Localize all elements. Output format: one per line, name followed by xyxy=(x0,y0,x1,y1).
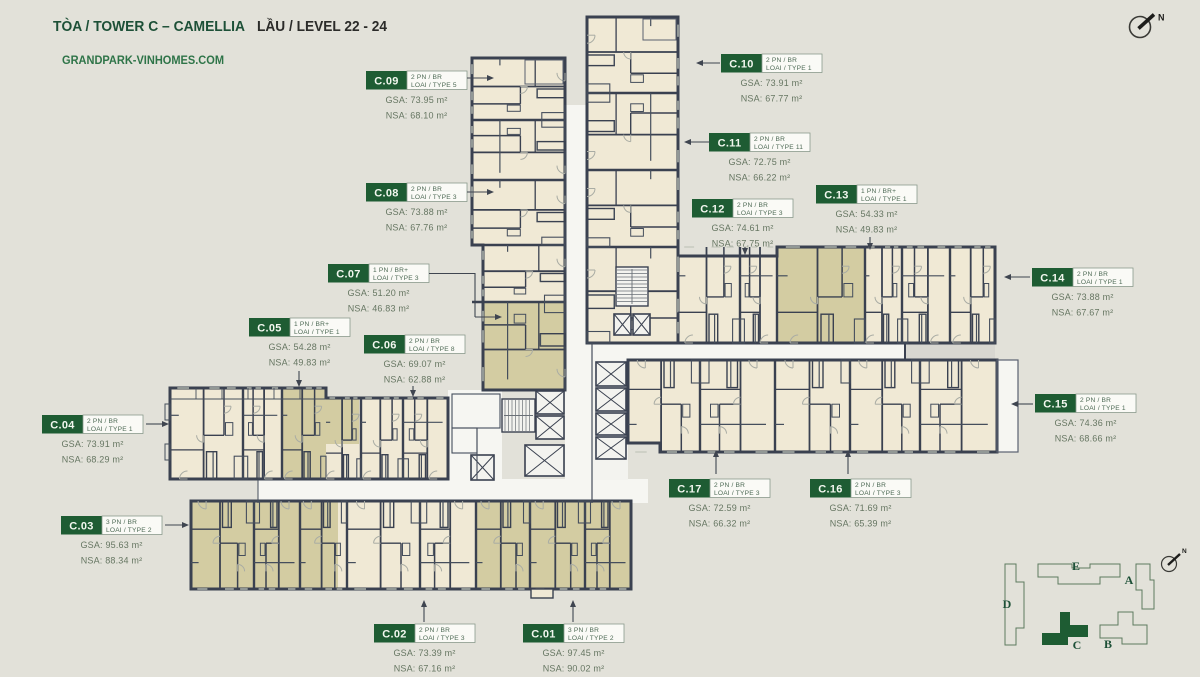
svg-text:B: B xyxy=(1104,637,1112,651)
svg-text:NSA: 67.77 m²: NSA: 67.77 m² xyxy=(741,94,803,104)
svg-text:C.06: C.06 xyxy=(372,340,396,352)
svg-text:D: D xyxy=(1003,597,1012,611)
svg-text:2 PN / BR: 2 PN / BR xyxy=(754,136,785,143)
svg-text:GSA: 51.20 m²: GSA: 51.20 m² xyxy=(347,288,409,298)
svg-text:NSA: 49.83 m²: NSA: 49.83 m² xyxy=(269,358,331,368)
svg-text:NSA: 90.02 m²: NSA: 90.02 m² xyxy=(543,664,605,674)
svg-text:NSA: 67.75 m²: NSA: 67.75 m² xyxy=(712,239,774,249)
svg-text:LOAI / TYPE 3: LOAI / TYPE 3 xyxy=(419,635,465,642)
svg-text:LOAI / TYPE 1: LOAI / TYPE 1 xyxy=(766,65,812,72)
svg-text:2 PN / BR: 2 PN / BR xyxy=(766,57,797,64)
svg-text:GSA: 73.95 m²: GSA: 73.95 m² xyxy=(385,95,447,105)
svg-text:2 PN / BR: 2 PN / BR xyxy=(411,74,442,81)
svg-text:GRANDPARK-VINHOMES.COM: GRANDPARK-VINHOMES.COM xyxy=(62,53,224,67)
svg-text:C.15: C.15 xyxy=(1043,399,1067,411)
svg-text:NSA: 46.83 m²: NSA: 46.83 m² xyxy=(348,304,410,314)
svg-text:2 PN / BR: 2 PN / BR xyxy=(87,418,118,425)
svg-text:NSA: 49.83 m²: NSA: 49.83 m² xyxy=(836,225,898,235)
svg-text:GSA: 72.75 m²: GSA: 72.75 m² xyxy=(728,157,790,167)
svg-text:C.10: C.10 xyxy=(729,59,753,71)
svg-text:GSA: 54.28 m²: GSA: 54.28 m² xyxy=(268,342,330,352)
svg-text:1 PN / BR+: 1 PN / BR+ xyxy=(294,321,329,328)
svg-text:2 PN / BR: 2 PN / BR xyxy=(409,338,440,345)
svg-text:GSA: 73.88 m²: GSA: 73.88 m² xyxy=(385,207,447,217)
svg-text:C.05: C.05 xyxy=(257,323,281,335)
svg-text:GSA: 73.39 m²: GSA: 73.39 m² xyxy=(393,648,455,658)
svg-text:GSA: 71.69 m²: GSA: 71.69 m² xyxy=(829,503,891,513)
svg-text:A: A xyxy=(1125,573,1134,587)
svg-text:C.13: C.13 xyxy=(824,190,848,202)
svg-text:NSA: 68.10 m²: NSA: 68.10 m² xyxy=(386,111,448,121)
svg-text:GSA: 73.91 m²: GSA: 73.91 m² xyxy=(61,439,123,449)
svg-text:GSA: 72.59 m²: GSA: 72.59 m² xyxy=(688,503,750,513)
svg-text:LOAI / TYPE 8: LOAI / TYPE 8 xyxy=(409,346,455,353)
svg-text:GSA: 74.36 m²: GSA: 74.36 m² xyxy=(1054,418,1116,428)
svg-text:C.08: C.08 xyxy=(374,188,398,200)
svg-text:NSA: 68.29 m²: NSA: 68.29 m² xyxy=(62,455,124,465)
svg-text:LOAI / TYPE 11: LOAI / TYPE 11 xyxy=(754,144,803,151)
svg-text:LOAI / TYPE 1: LOAI / TYPE 1 xyxy=(1077,279,1123,286)
svg-text:LOAI / TYPE 1: LOAI / TYPE 1 xyxy=(87,426,133,433)
svg-text:E: E xyxy=(1072,559,1080,573)
svg-text:N: N xyxy=(1158,13,1165,23)
svg-text:NSA: 68.66 m²: NSA: 68.66 m² xyxy=(1055,434,1117,444)
svg-text:N: N xyxy=(1182,548,1187,555)
svg-text:NSA: 67.67 m²: NSA: 67.67 m² xyxy=(1052,308,1114,318)
svg-text:NSA: 65.39 m²: NSA: 65.39 m² xyxy=(830,519,892,529)
svg-text:C.02: C.02 xyxy=(382,629,406,641)
svg-text:GSA: 97.45 m²: GSA: 97.45 m² xyxy=(542,648,604,658)
svg-text:NSA: 62.88 m²: NSA: 62.88 m² xyxy=(384,375,446,385)
svg-text:C.09: C.09 xyxy=(374,76,398,88)
svg-text:C.11: C.11 xyxy=(718,138,742,150)
svg-text:C.01: C.01 xyxy=(531,629,555,641)
svg-text:C.17: C.17 xyxy=(677,484,701,496)
svg-text:LOAI / TYPE 2: LOAI / TYPE 2 xyxy=(106,527,152,534)
svg-text:NSA: 67.76 m²: NSA: 67.76 m² xyxy=(386,223,448,233)
svg-text:LOAI / TYPE 3: LOAI / TYPE 3 xyxy=(714,490,760,497)
svg-text:GSA: 54.33 m²: GSA: 54.33 m² xyxy=(835,209,897,219)
svg-text:3 PN / BR: 3 PN / BR xyxy=(568,627,599,634)
svg-text:1 PN / BR+: 1 PN / BR+ xyxy=(373,267,408,274)
svg-text:1 PN / BR+: 1 PN / BR+ xyxy=(861,188,896,195)
svg-text:2 PN / BR: 2 PN / BR xyxy=(1080,397,1111,404)
svg-text:NSA: 66.22 m²: NSA: 66.22 m² xyxy=(729,173,791,183)
svg-text:GSA: 69.07 m²: GSA: 69.07 m² xyxy=(383,359,445,369)
svg-text:C.16: C.16 xyxy=(818,484,842,496)
svg-text:C.12: C.12 xyxy=(700,204,724,216)
svg-text:2 PN / BR: 2 PN / BR xyxy=(855,482,886,489)
svg-text:GSA: 73.91 m²: GSA: 73.91 m² xyxy=(740,78,802,88)
svg-text:2 PN / BR: 2 PN / BR xyxy=(714,482,745,489)
svg-text:C.04: C.04 xyxy=(50,420,75,432)
svg-text:C.07: C.07 xyxy=(336,269,360,281)
svg-text:LOAI / TYPE 5: LOAI / TYPE 5 xyxy=(411,82,457,89)
svg-text:LOAI / TYPE 1: LOAI / TYPE 1 xyxy=(1080,405,1126,412)
svg-text:LOAI / TYPE 3: LOAI / TYPE 3 xyxy=(855,490,901,497)
svg-text:NSA: 88.34 m²: NSA: 88.34 m² xyxy=(81,556,143,566)
svg-text:GSA: 73.88 m²: GSA: 73.88 m² xyxy=(1051,292,1113,302)
svg-text:LOAI / TYPE 1: LOAI / TYPE 1 xyxy=(294,329,340,336)
svg-text:TÒA / TOWER C – CAMELLIA: TÒA / TOWER C – CAMELLIA xyxy=(53,17,245,35)
svg-text:2 PN / BR: 2 PN / BR xyxy=(1077,271,1108,278)
svg-text:3 PN / BR: 3 PN / BR xyxy=(106,519,137,526)
svg-text:2 PN / BR: 2 PN / BR xyxy=(411,186,442,193)
svg-text:NSA: 66.32 m²: NSA: 66.32 m² xyxy=(689,519,751,529)
svg-text:GSA: 95.63 m²: GSA: 95.63 m² xyxy=(80,540,142,550)
svg-text:LOAI / TYPE 3: LOAI / TYPE 3 xyxy=(373,275,419,282)
svg-text:LẦU / LEVEL 22 - 24: LẦU / LEVEL 22 - 24 xyxy=(257,18,387,35)
svg-text:C.03: C.03 xyxy=(69,521,93,533)
svg-text:LOAI / TYPE 2: LOAI / TYPE 2 xyxy=(568,635,614,642)
svg-text:C: C xyxy=(1073,638,1082,652)
svg-text:LOAI / TYPE 1: LOAI / TYPE 1 xyxy=(861,196,907,203)
svg-text:LOAI / TYPE 3: LOAI / TYPE 3 xyxy=(737,210,783,217)
svg-text:C.14: C.14 xyxy=(1040,273,1065,285)
svg-text:GSA: 74.61 m²: GSA: 74.61 m² xyxy=(711,223,773,233)
svg-text:NSA: 67.16 m²: NSA: 67.16 m² xyxy=(394,664,456,674)
svg-text:2 PN / BR: 2 PN / BR xyxy=(737,202,768,209)
svg-text:2 PN / BR: 2 PN / BR xyxy=(419,627,450,634)
svg-text:LOAI / TYPE 3: LOAI / TYPE 3 xyxy=(411,194,457,201)
